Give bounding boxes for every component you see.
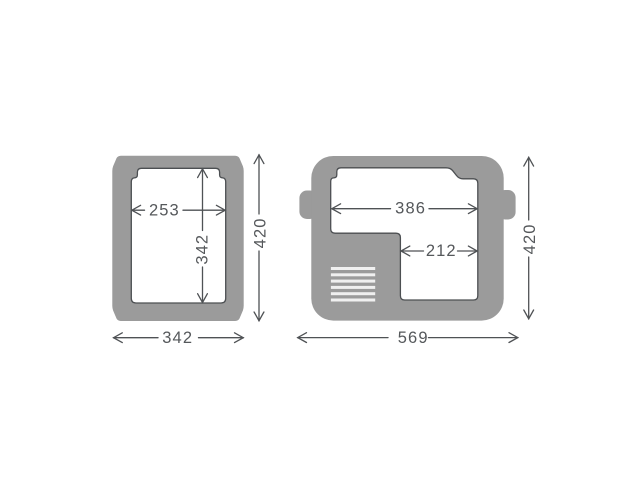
svg-text:386: 386 [395,200,426,218]
svg-text:420: 420 [521,223,539,254]
svg-text:253: 253 [149,202,180,220]
svg-text:420: 420 [251,217,269,248]
svg-text:342: 342 [162,329,193,347]
svg-text:212: 212 [426,242,457,260]
svg-text:342: 342 [194,234,212,265]
svg-text:569: 569 [398,329,429,347]
